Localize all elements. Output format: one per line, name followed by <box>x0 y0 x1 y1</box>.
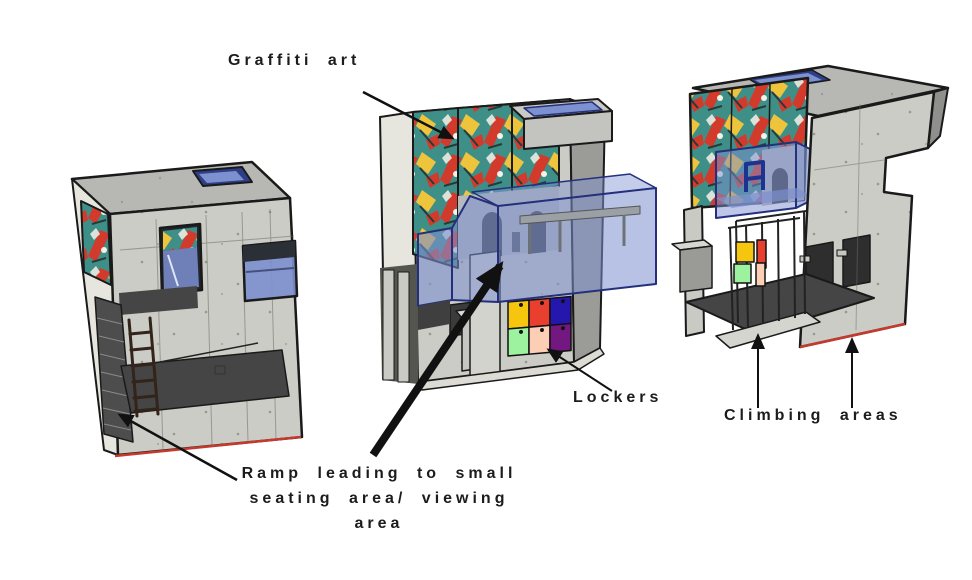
locker-cell <box>508 300 529 329</box>
ramp-label-line-1: Ramp leading to small <box>214 461 544 486</box>
mid-skylight-box <box>510 99 612 149</box>
mezzanine-right-box <box>498 188 656 302</box>
lockers-grid <box>508 296 571 356</box>
climb-hold <box>734 264 751 283</box>
ramp-label-line-3: area <box>214 511 544 536</box>
graffiti-art-label: Graffiti art <box>228 52 360 70</box>
climb-hold <box>736 242 754 262</box>
mezzanine-left-box <box>418 228 452 306</box>
left-mid-window <box>160 224 202 294</box>
climbing-areas-label: Climbing areas <box>724 407 902 425</box>
left-right-window <box>243 241 297 301</box>
mid-pilasters <box>380 264 418 384</box>
locker-cell <box>550 323 571 352</box>
design-board: Graffiti art Lockers Climbing areas Ramp… <box>0 0 972 580</box>
locker-cell <box>550 296 571 325</box>
locker-cell <box>529 298 550 327</box>
right-glass-box <box>716 142 812 218</box>
ramp-label: Ramp leading to small seating area/ view… <box>214 461 544 536</box>
locker-cell <box>508 327 529 356</box>
right-building-view <box>672 66 948 348</box>
ramp-label-line-2: seating area/ viewing <box>214 486 544 511</box>
right-small-box <box>672 240 712 292</box>
lockers-label: Lockers <box>573 389 662 407</box>
left-building-view <box>72 162 302 456</box>
left-graffiti-strip <box>81 201 111 285</box>
middle-building-view <box>380 99 656 390</box>
locker-cell <box>529 325 550 354</box>
climb-hold <box>756 263 765 286</box>
